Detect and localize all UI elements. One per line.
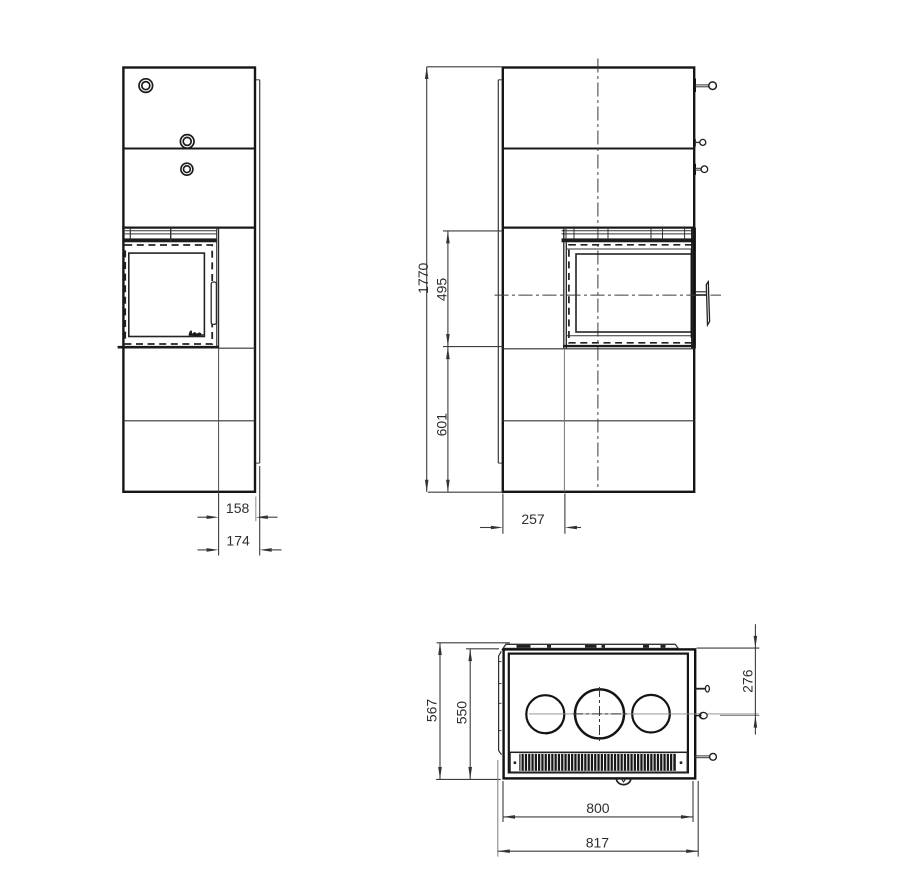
svg-text:174: 174 xyxy=(226,533,250,549)
svg-text:550: 550 xyxy=(453,701,469,725)
svg-text:495: 495 xyxy=(433,278,449,302)
svg-text:800: 800 xyxy=(586,800,610,816)
svg-text:567: 567 xyxy=(423,699,439,723)
svg-text:1770: 1770 xyxy=(415,263,431,294)
svg-text:601: 601 xyxy=(433,413,449,437)
svg-text:158: 158 xyxy=(226,500,250,516)
svg-text:276: 276 xyxy=(739,669,755,693)
svg-text:257: 257 xyxy=(521,511,545,527)
svg-text:817: 817 xyxy=(586,834,610,850)
